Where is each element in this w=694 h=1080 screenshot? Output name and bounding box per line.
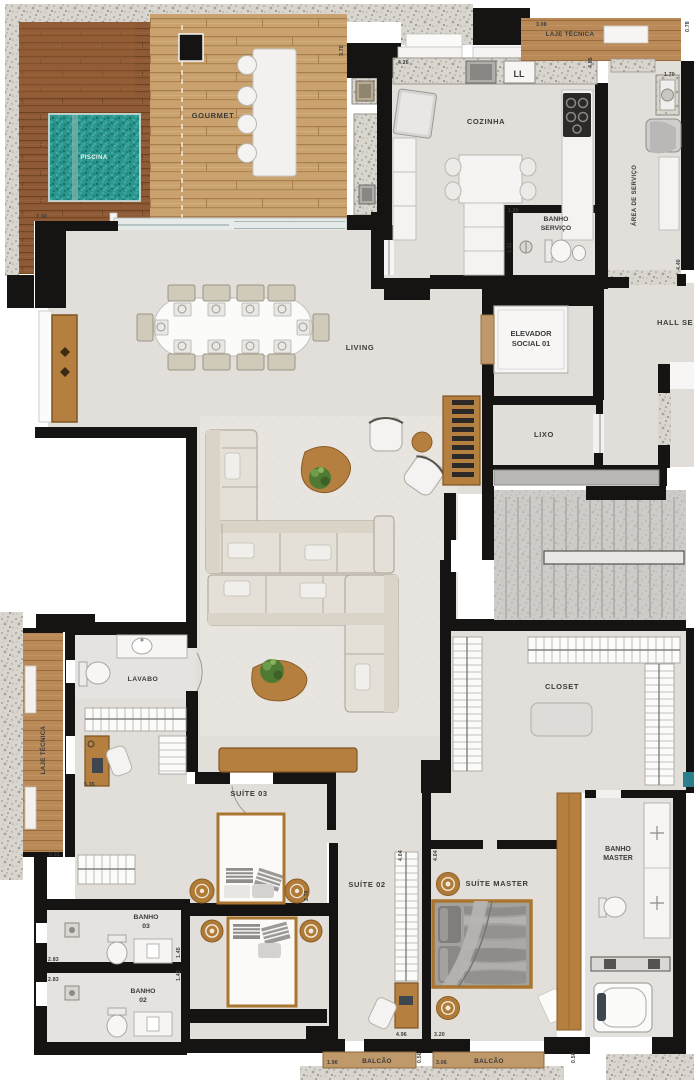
svg-text:LL: LL — [514, 69, 525, 79]
svg-text:4.04: 4.04 — [433, 850, 439, 861]
svg-text:ELEVADOR: ELEVADOR — [510, 329, 552, 338]
svg-text:3.70: 3.70 — [339, 45, 345, 56]
svg-text:ÁREA DE SERVIÇO: ÁREA DE SERVIÇO — [631, 165, 638, 226]
svg-text:BANHO: BANHO — [605, 846, 631, 853]
svg-text:LIVING: LIVING — [346, 343, 375, 352]
svg-text:0.50: 0.50 — [417, 1052, 423, 1063]
svg-text:BANHO: BANHO — [544, 216, 569, 223]
svg-text:3.06: 3.06 — [436, 1060, 447, 1066]
svg-text:2.83: 2.83 — [48, 977, 59, 983]
svg-text:BALCÃO: BALCÃO — [474, 1056, 504, 1065]
svg-text:HALL SE: HALL SE — [657, 318, 693, 327]
svg-text:SUÍTE 03: SUÍTE 03 — [230, 789, 267, 798]
svg-text:SUÍTE 02: SUÍTE 02 — [348, 880, 385, 889]
svg-text:COZINHA: COZINHA — [467, 117, 505, 126]
svg-text:0.50: 0.50 — [571, 1052, 577, 1063]
svg-text:BALCÃO: BALCÃO — [362, 1056, 392, 1065]
svg-text:1.80: 1.80 — [508, 208, 519, 214]
svg-text:CLOSET: CLOSET — [545, 682, 579, 691]
svg-text:3.20: 3.20 — [434, 1032, 445, 1038]
svg-text:02: 02 — [139, 997, 147, 1004]
svg-text:1.43: 1.43 — [176, 970, 182, 981]
svg-text:4.04: 4.04 — [398, 850, 404, 861]
svg-text:1.45: 1.45 — [176, 947, 182, 958]
svg-text:1.11: 1.11 — [507, 242, 513, 253]
svg-text:SUÍTE MASTER: SUÍTE MASTER — [465, 879, 528, 888]
svg-text:MASTER: MASTER — [603, 855, 633, 862]
svg-text:PISCINA: PISCINA — [80, 155, 107, 161]
svg-text:03: 03 — [142, 923, 150, 930]
svg-text:5.35: 5.35 — [84, 782, 95, 788]
svg-text:0.91: 0.91 — [49, 852, 60, 858]
svg-text:BANHO: BANHO — [131, 988, 156, 995]
svg-text:3.08: 3.08 — [536, 22, 547, 28]
svg-text:4.96: 4.96 — [396, 1032, 407, 1038]
svg-text:SERVIÇO: SERVIÇO — [541, 225, 571, 232]
svg-text:LAJE TÉCNICA: LAJE TÉCNICA — [39, 725, 47, 774]
svg-text:4.26: 4.26 — [398, 60, 409, 66]
svg-text:GOURMET: GOURMET — [192, 111, 235, 120]
svg-text:1.96: 1.96 — [327, 1060, 338, 1066]
svg-text:SOCIAL 01: SOCIAL 01 — [512, 339, 551, 348]
svg-text:LAVABO: LAVABO — [128, 676, 159, 683]
svg-text:LIXO: LIXO — [534, 430, 554, 439]
svg-text:4.40: 4.40 — [676, 259, 682, 270]
svg-text:LAJE TÉCNICA: LAJE TÉCNICA — [546, 30, 595, 38]
svg-text:0.78: 0.78 — [685, 21, 691, 32]
svg-text:BANHO: BANHO — [134, 914, 159, 921]
svg-text:1.70: 1.70 — [664, 72, 675, 78]
svg-text:2.83: 2.83 — [48, 957, 59, 963]
svg-text:7.30: 7.30 — [36, 214, 47, 220]
svg-text:2.76: 2.76 — [304, 890, 310, 901]
svg-text:4.85: 4.85 — [588, 57, 594, 68]
